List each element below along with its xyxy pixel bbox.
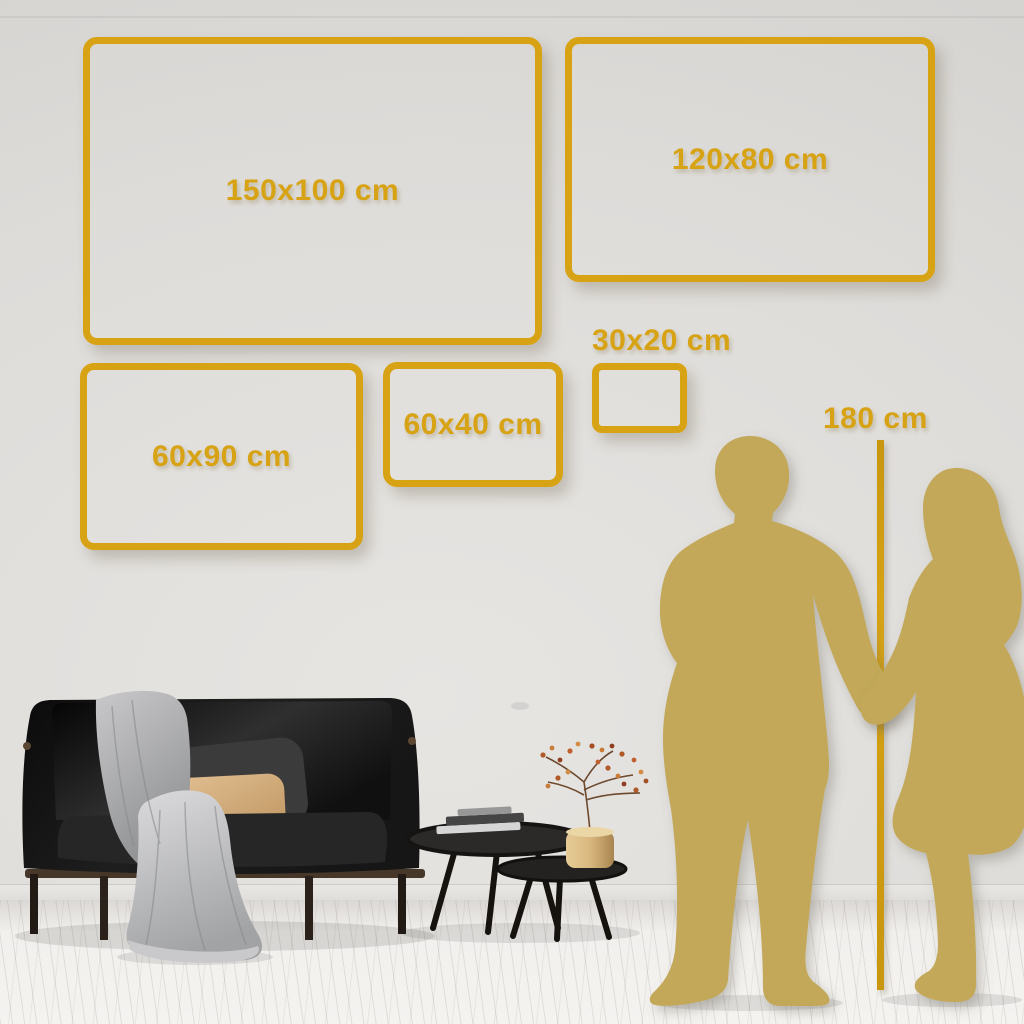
woman-silhouette xyxy=(861,468,1024,1002)
height-marker-label: 180 cm xyxy=(823,402,928,436)
couple-silhouettes xyxy=(0,0,1024,1024)
size-comparison-scene: 150x100 cm 120x80 cm 60x90 cm 60x40 cm 3… xyxy=(0,0,1024,1024)
man-silhouette xyxy=(650,436,897,1006)
